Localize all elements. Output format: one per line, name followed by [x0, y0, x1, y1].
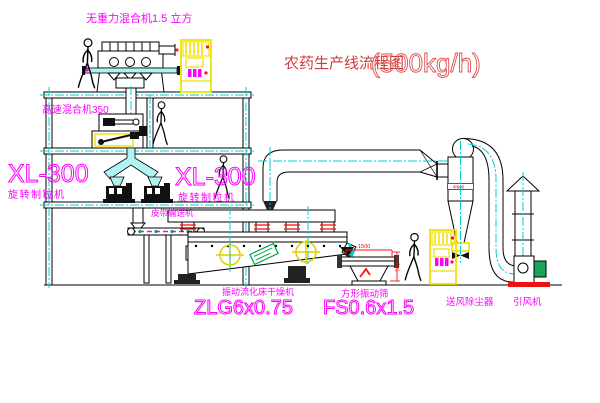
vibrating-screen-assembly: 1500 745 — [337, 244, 402, 285]
pipe-dot — [85, 68, 88, 71]
granulator-downpipe — [133, 208, 143, 223]
exhaust-duct — [258, 147, 462, 210]
worker-ground — [405, 233, 421, 280]
cad-flow-diagram: Φ600 — [0, 0, 600, 403]
dryer-name-label: 振动流化床干燥机 — [222, 286, 294, 297]
dryer-foot-left — [174, 274, 200, 284]
indicator-lamp-4 — [450, 260, 453, 263]
exhaust-stack — [507, 172, 539, 262]
cabinet2-display-marks — [435, 258, 449, 266]
hs-mixer-discharge — [139, 126, 147, 136]
belt-conveyor-label: 皮带输送机 — [151, 208, 194, 218]
control-cabinet-top — [181, 40, 211, 92]
granulator-right-machine — [141, 177, 173, 203]
mixer-discharge-box — [116, 78, 144, 88]
granulator-right-model: XL-300 — [175, 163, 256, 191]
title-capacity: (500kg/h) — [371, 48, 481, 78]
fan-base — [508, 282, 550, 287]
screen-length-dim: 1500 — [358, 244, 370, 250]
drawing-canvas: Φ600 — [0, 0, 600, 403]
valve-indicator-dot — [175, 48, 178, 51]
dryer-model-label: ZLG6x0.75 — [194, 297, 293, 319]
screen-base-plate — [352, 281, 386, 285]
dryer-foot-right — [284, 266, 310, 283]
granulator-left-machine — [103, 177, 135, 203]
granulator-left-model: XL-300 — [8, 160, 89, 188]
indicator-lamp-3 — [451, 236, 454, 239]
fan-label: 引风机 — [513, 296, 542, 308]
high-speed-mixer-label: 高速混合机350 — [42, 103, 109, 116]
cabinet2-vents — [435, 233, 451, 244]
flex-reducer — [420, 150, 449, 180]
cabinet-panel — [186, 58, 203, 67]
cyclone-outlet-turn — [453, 139, 474, 160]
indicator-lamp — [206, 45, 209, 48]
fluid-bed-dryer — [168, 206, 356, 284]
gravity-mixer-label: 无重力混合机1.5 立方 — [86, 11, 192, 25]
screen-model-label: FS0.6x1.5 — [323, 297, 414, 319]
granulator-right-name: 旋转制粒机 — [178, 191, 236, 204]
hs-mixer-motor — [103, 118, 115, 126]
granulator-left-name: 旋转制粒机 — [8, 188, 66, 201]
fan-motor — [534, 261, 546, 277]
dust-collector-label: 送风除尘器 — [446, 296, 494, 308]
drawing-title: 农药生产线流程图 (500kg/h) — [284, 48, 481, 78]
high-speed-mixer — [92, 114, 147, 148]
dryer-rim — [188, 232, 347, 237]
cabinet-display-marks — [188, 69, 202, 77]
induced-draft-fan — [508, 256, 550, 287]
worker-second-floor — [153, 102, 167, 145]
screw-conveyor-pipe — [85, 68, 177, 73]
indicator-lamp-2 — [204, 71, 207, 74]
pipe-endcap-right — [177, 66, 180, 75]
mixer-side-pipe — [159, 46, 175, 54]
cyclone-separator: Φ600 — [448, 139, 474, 264]
cyclone-dim-text: Φ600 — [453, 185, 465, 190]
worker-top-floor — [78, 39, 94, 88]
screen-height-dim: 745 — [396, 263, 402, 272]
cabinet-vents — [186, 43, 202, 55]
